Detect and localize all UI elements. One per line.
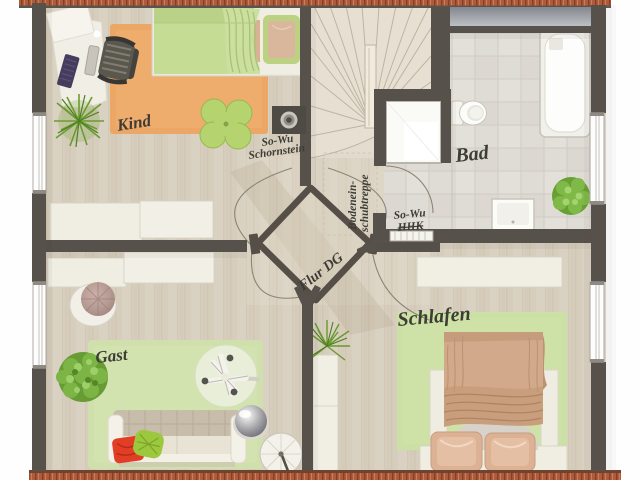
svg-text:schubtreppe: schubtreppe — [359, 175, 371, 234]
svg-text:Gast: Gast — [94, 345, 129, 367]
svg-text:Bodenein-: Bodenein- — [347, 181, 359, 231]
svg-text:HHK: HHK — [396, 220, 425, 234]
svg-text:Bad: Bad — [453, 142, 490, 168]
